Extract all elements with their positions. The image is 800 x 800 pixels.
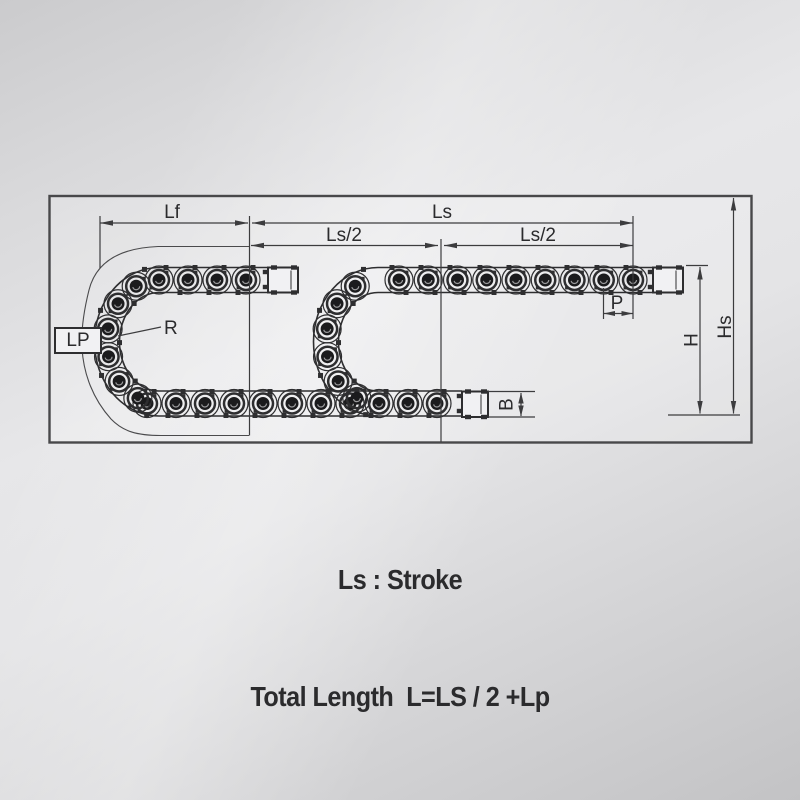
page-background: Lf Ls Ls/2 Ls/2 P <box>0 0 800 800</box>
dim-label-p: P <box>611 293 624 314</box>
dim-label-b: B <box>497 398 518 411</box>
dim-label-hs: Hs <box>715 315 736 338</box>
dim-label-r: R <box>164 318 178 339</box>
diagram-border <box>50 196 752 443</box>
lp-callout: LP <box>55 328 101 353</box>
note-stroke: Ls : Stroke <box>40 560 760 599</box>
dim-label-lp: LP <box>66 330 89 351</box>
dim-label-lf: Lf <box>164 202 181 223</box>
dim-label-ls: Ls <box>432 202 452 223</box>
notes-block: Ls : Stroke Total Length L=LS / 2 +Lp Sa… <box>40 482 760 800</box>
dim-label-ls2-right: Ls/2 <box>520 225 556 246</box>
dim-label-h: H <box>682 333 703 347</box>
note-safe-space: Safe space Hs ⩾ H + 30 mm <box>40 794 760 800</box>
note-total-length: Total Length L=LS / 2 +Lp <box>40 677 760 716</box>
dim-label-ls2-left: Ls/2 <box>326 225 362 246</box>
